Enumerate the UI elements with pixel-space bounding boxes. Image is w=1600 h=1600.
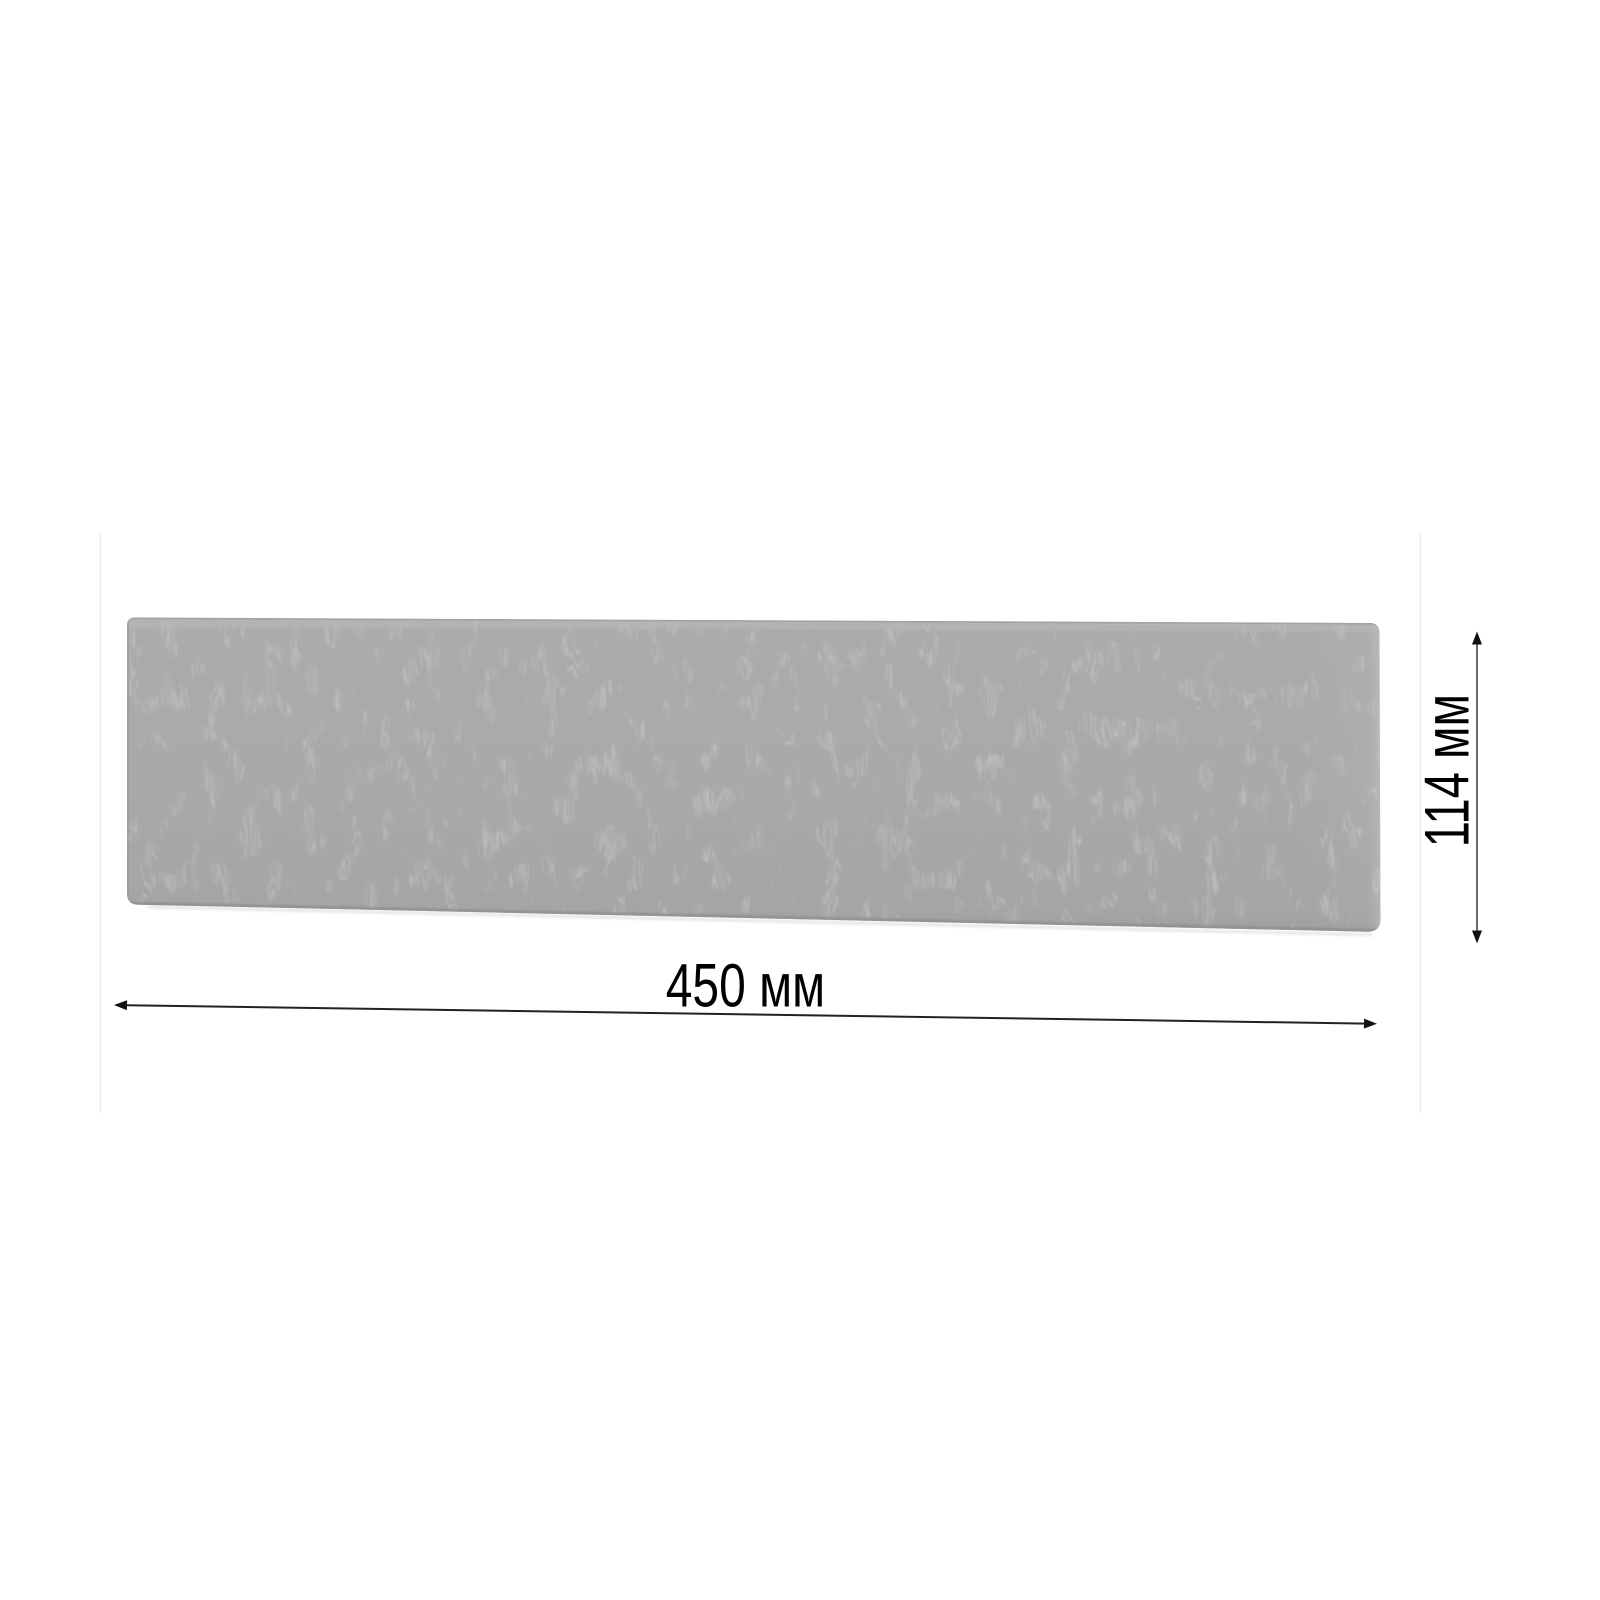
svg-text:114 мм: 114 мм [1412,694,1482,847]
svg-text:450 мм: 450 мм [666,951,825,1020]
